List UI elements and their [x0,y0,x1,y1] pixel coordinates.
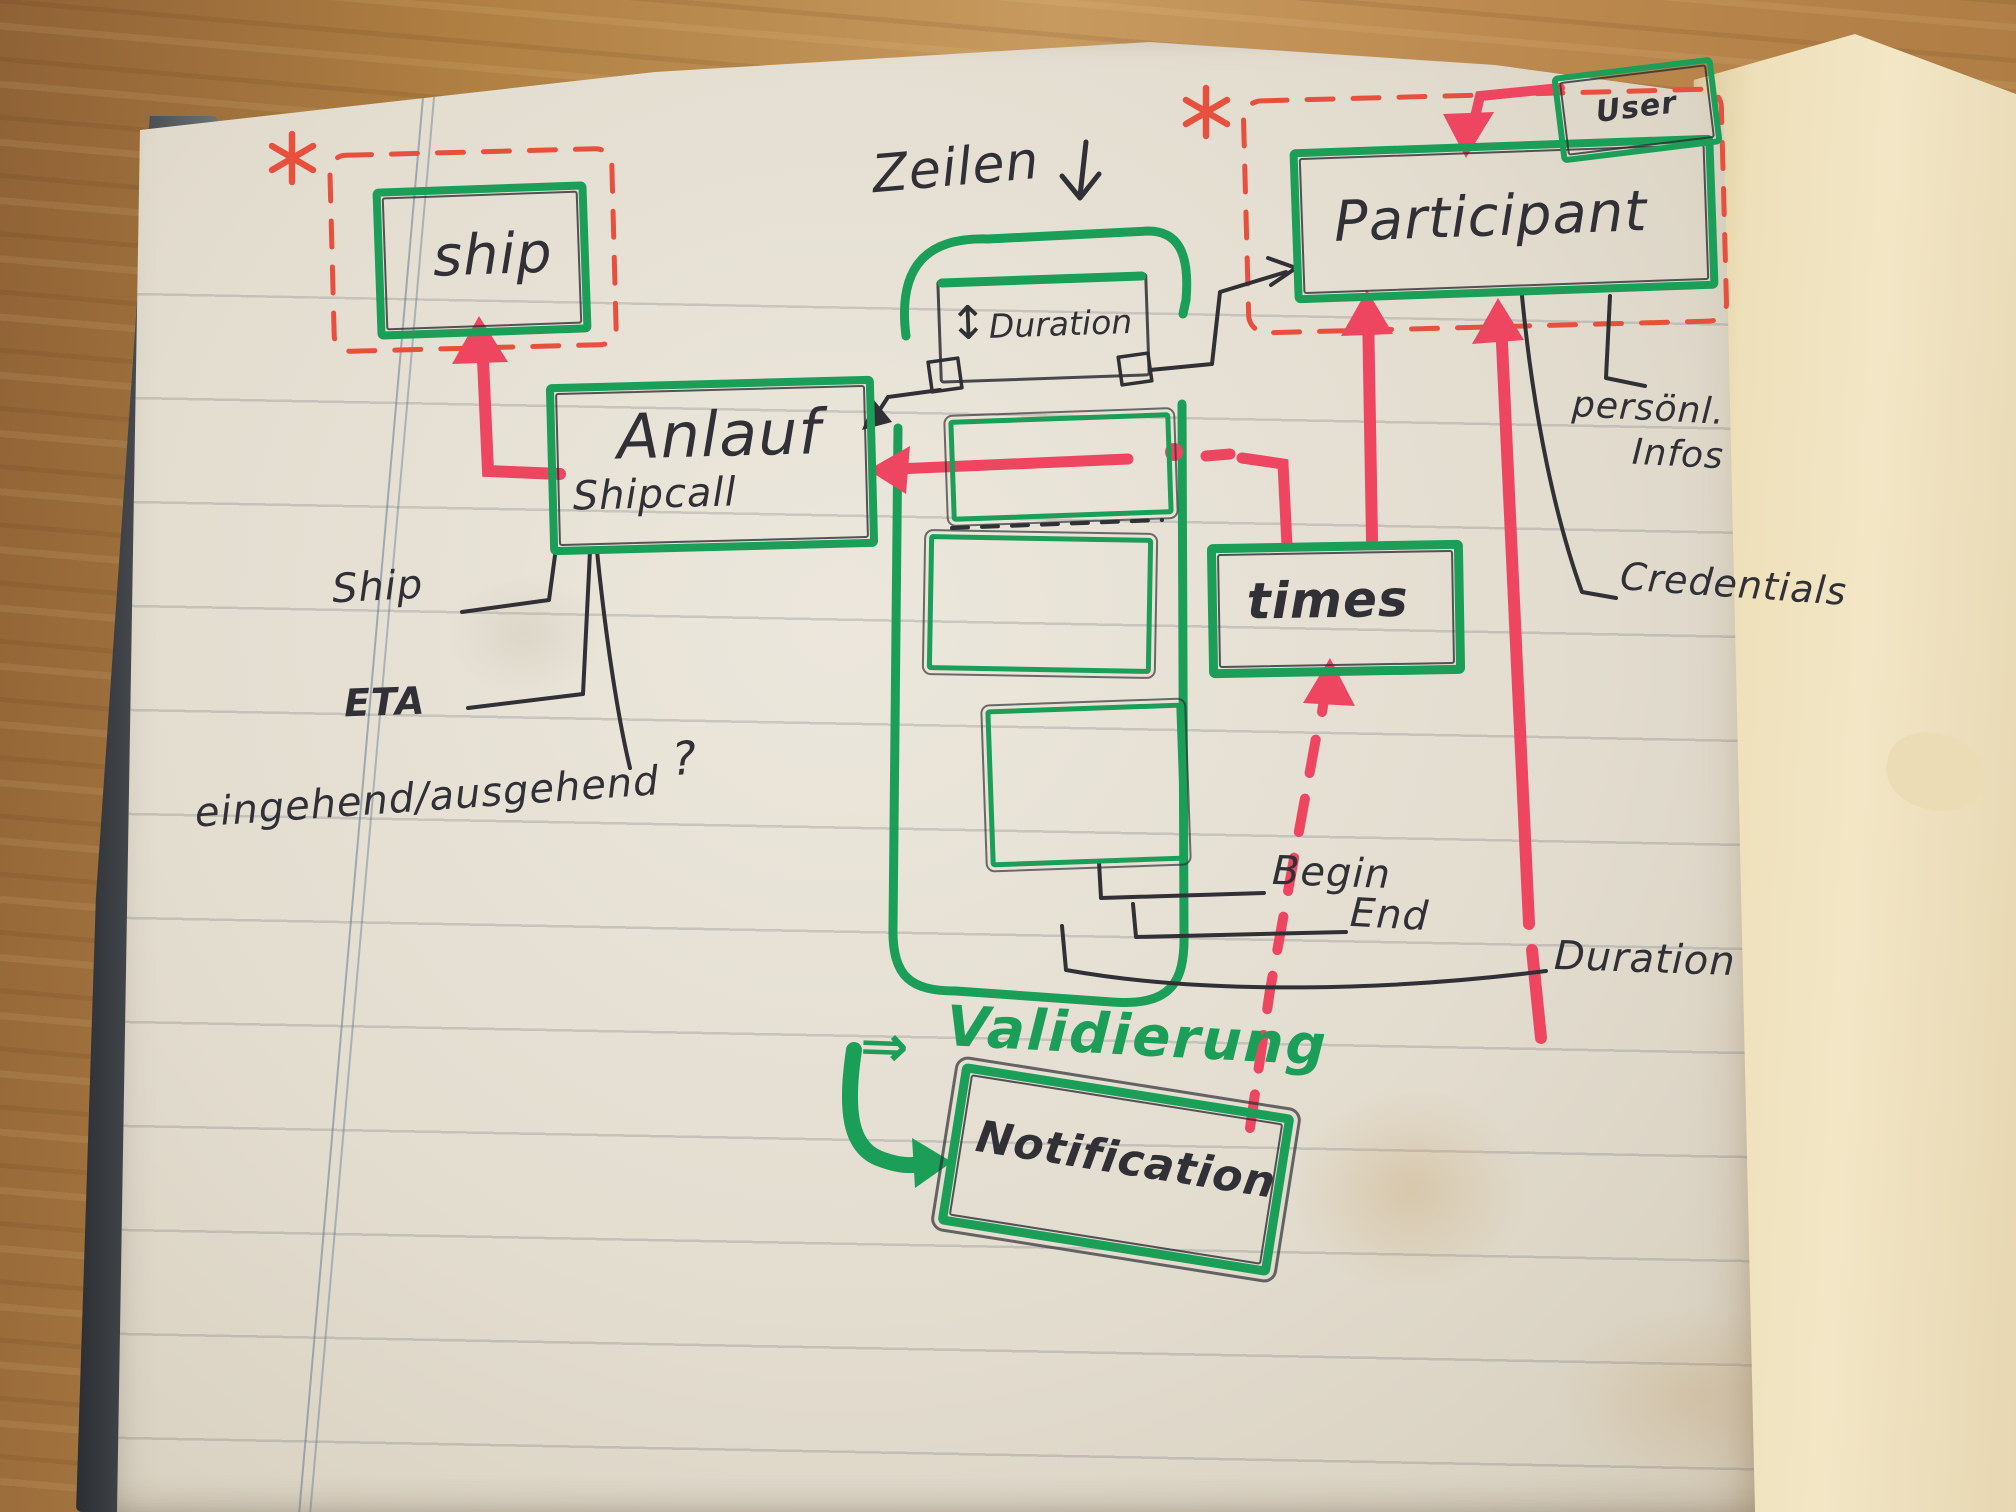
anlauf-label: Anlauf [616,395,822,473]
label-duration-attr: Duration [1553,933,1736,985]
participant-label: Participant [1333,179,1648,255]
arrow-notification-to-participant [1532,950,1541,1038]
label-personal-infos-2: Infos [1631,432,1725,478]
zeilen-down-arrow-icon [1062,142,1099,198]
list-divider-dashed [952,520,1162,528]
times-label: times [1246,570,1409,631]
question-mark: ? [670,730,699,786]
notification-label: Notification [972,1111,1279,1209]
entity-box-shipcall: Anlauf Shipcall [546,376,878,556]
connector-end [1133,904,1346,937]
shipcall-label: Shipcall [572,469,737,519]
label-ship-attr: Ship [331,562,425,613]
label-eta-attr: ETA [343,679,426,726]
updown-arrow-icon: ↕ [948,295,988,350]
entity-box-ship: ship [372,181,591,339]
arrow-times-to-anlauf-dash [1206,454,1230,456]
notebook-photo-scene: ship Anlauf Shipcall ↕ Duration Particip… [0,0,2016,1512]
user-label: User [1594,85,1679,130]
asterisk-icon [272,134,313,182]
entity-box-times: times [1207,540,1465,678]
duration-label: Duration [988,302,1133,346]
connector-eta-attr [468,551,590,708]
connector-duration-to-participant [1150,272,1286,370]
time-entry-box [985,703,1186,868]
connector-inout-attr [597,551,630,768]
asterisk-icon [1186,88,1227,136]
connector-credentials [1522,296,1616,598]
entity-box-duration: ↕ Duration [936,272,1151,383]
arrow-times-to-anlauf [1242,458,1287,546]
entity-box-participant: Participant [1289,135,1718,304]
arrowhead [1472,298,1524,344]
label-personal-infos: persönl. [1571,384,1726,433]
validation-arrow-icon: ⇒ [859,1011,911,1081]
arrow-notification-to-participant-2 [1501,322,1529,924]
ship-label: ship [432,221,554,290]
connector-ship-attr [462,548,556,612]
arrow-times-to-participant [1368,310,1372,540]
label-end-attr: End [1349,890,1430,940]
time-entry-box [948,412,1173,522]
connector-duration-to-anlauf [877,390,940,414]
connector-personal-infos [1606,296,1645,386]
time-entry-box [927,534,1153,674]
